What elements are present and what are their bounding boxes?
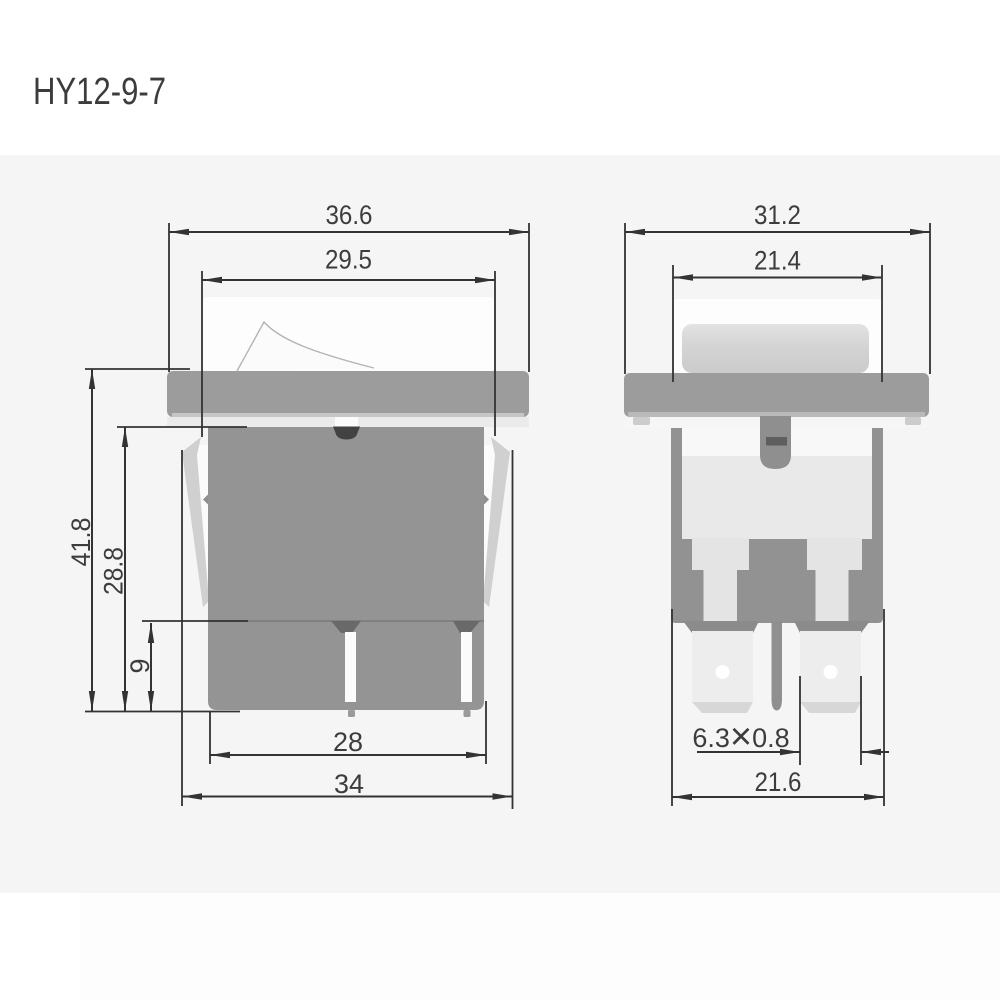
svg-text:28.8: 28.8	[99, 547, 129, 595]
svg-text:29.5: 29.5	[325, 245, 372, 275]
svg-text:28: 28	[333, 727, 363, 757]
svg-text:21.6: 21.6	[755, 767, 802, 797]
svg-text:36.6: 36.6	[326, 200, 373, 230]
svg-text:9: 9	[125, 658, 155, 673]
svg-text:34: 34	[334, 769, 364, 799]
svg-text:21.4: 21.4	[754, 246, 801, 276]
svg-text:41.8: 41.8	[66, 518, 96, 567]
svg-text:6.3×0.8: 6.3×0.8	[692, 716, 789, 758]
svg-text:HY12-9-7: HY12-9-7	[33, 71, 166, 113]
svg-text:31.2: 31.2	[754, 200, 801, 230]
